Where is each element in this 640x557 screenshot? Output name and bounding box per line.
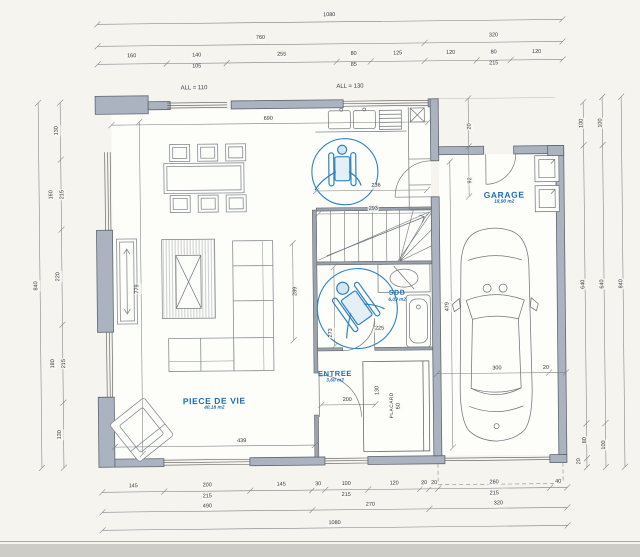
dimension-label: 260 xyxy=(489,480,500,486)
dimension-label: 130 xyxy=(55,125,61,136)
dimension-label: 200 xyxy=(342,398,353,404)
room-label: ENTREE xyxy=(318,370,352,378)
dimension-label: 100 xyxy=(341,482,352,488)
labels-layer: 1080760320160140105255808512512080215120… xyxy=(0,0,640,557)
dimension-label: 215 xyxy=(62,358,68,369)
dimension-label: 40 xyxy=(554,480,562,486)
dimension-label: 320 xyxy=(488,33,499,39)
dimension-label: 120 xyxy=(445,51,456,57)
room-label: SDB xyxy=(389,290,406,297)
dimension-label: 439 xyxy=(236,439,247,445)
dimension-label: 80 xyxy=(350,52,358,58)
dimension-label: 20 xyxy=(577,457,583,465)
dimension-label: 140 xyxy=(191,53,202,59)
dimension-label: 490 xyxy=(202,504,213,510)
dimension-label: 100 xyxy=(602,439,608,450)
dimension-label: 125 xyxy=(392,51,403,57)
scan-artifact-band xyxy=(0,544,640,557)
dimension-label: 20 xyxy=(430,481,438,487)
dimension-label: 289 xyxy=(293,286,299,297)
dimension-label: 840 xyxy=(34,280,40,291)
dimension-label: 145 xyxy=(276,483,287,489)
dimension-label: 160 xyxy=(126,54,137,60)
dimension-label: 100 xyxy=(599,117,605,128)
dimension-label: 225 xyxy=(374,327,385,333)
dimension-label: 20 xyxy=(542,366,550,372)
closet-label: PLACARD xyxy=(391,392,396,418)
dimension-label: 640 xyxy=(600,278,606,289)
dimension-label: 92 xyxy=(468,176,474,184)
dimension-label: 20 xyxy=(468,122,474,130)
dimension-label: 760 xyxy=(255,36,266,42)
dimension-label: 840 xyxy=(619,278,625,289)
room-area-label: 6,09 m2 xyxy=(388,299,406,304)
room-area-label: 40,18 m2 xyxy=(204,407,224,412)
dimension-label: 293 xyxy=(368,207,379,213)
dimension-label: 215 xyxy=(202,494,213,500)
window-sill-label: ALL = 130 xyxy=(336,84,363,90)
dimension-label: 215 xyxy=(488,61,499,67)
dimension-label: 60 xyxy=(397,402,403,410)
dimension-label: 273 xyxy=(329,327,335,338)
dimension-label: 690 xyxy=(263,117,274,123)
room-label: GARAGE xyxy=(484,191,525,200)
dimension-label: 1080 xyxy=(322,13,336,19)
dimension-label: 1080 xyxy=(327,521,341,527)
floor-plan: 1080760320160140105255808512512080215120… xyxy=(0,0,640,557)
dimension-label: 120 xyxy=(389,481,400,487)
scan-artifact-line xyxy=(0,541,640,542)
dimension-label: 779 xyxy=(135,283,141,294)
window-sill-label: ALL = 110 xyxy=(181,85,208,91)
dimension-label: 320 xyxy=(493,501,504,507)
dimension-label: 145 xyxy=(128,484,139,490)
dimension-label: 640 xyxy=(581,279,587,290)
dimension-label: 20 xyxy=(420,481,428,487)
dimension-label: 180 xyxy=(51,358,57,369)
dimension-label: 100 xyxy=(580,118,586,129)
dimension-label: 236 xyxy=(370,184,381,190)
dimension-label: 85 xyxy=(350,63,358,69)
dimension-label: 80 xyxy=(583,436,589,444)
dimension-label: 479 xyxy=(445,301,451,312)
dimension-label: 80 xyxy=(490,50,498,56)
dimension-label: 130 xyxy=(58,429,64,440)
dimension-label: 215 xyxy=(60,189,66,200)
dimension-label: 255 xyxy=(276,53,287,59)
dimension-label: 215 xyxy=(489,491,500,497)
dimension-label: 160 xyxy=(49,189,55,200)
room-area-label: 3,60 m2 xyxy=(326,379,344,384)
dimension-label: 130 xyxy=(375,385,381,396)
dimension-label: 30 xyxy=(314,482,322,488)
dimension-label: 120 xyxy=(531,50,542,56)
dimension-label: 200 xyxy=(202,483,213,489)
dimension-label: 300 xyxy=(491,366,502,372)
dimension-label: 220 xyxy=(56,271,62,282)
dimension-label: 105 xyxy=(191,64,202,70)
room-label: PIECE DE VIE xyxy=(183,397,246,406)
dimension-label: 270 xyxy=(365,503,376,509)
dimension-label: 215 xyxy=(341,493,352,499)
room-area-label: 18,90 m2 xyxy=(494,201,514,206)
scanned-floor-plan: 1080760320160140105255808512512080215120… xyxy=(0,0,640,557)
